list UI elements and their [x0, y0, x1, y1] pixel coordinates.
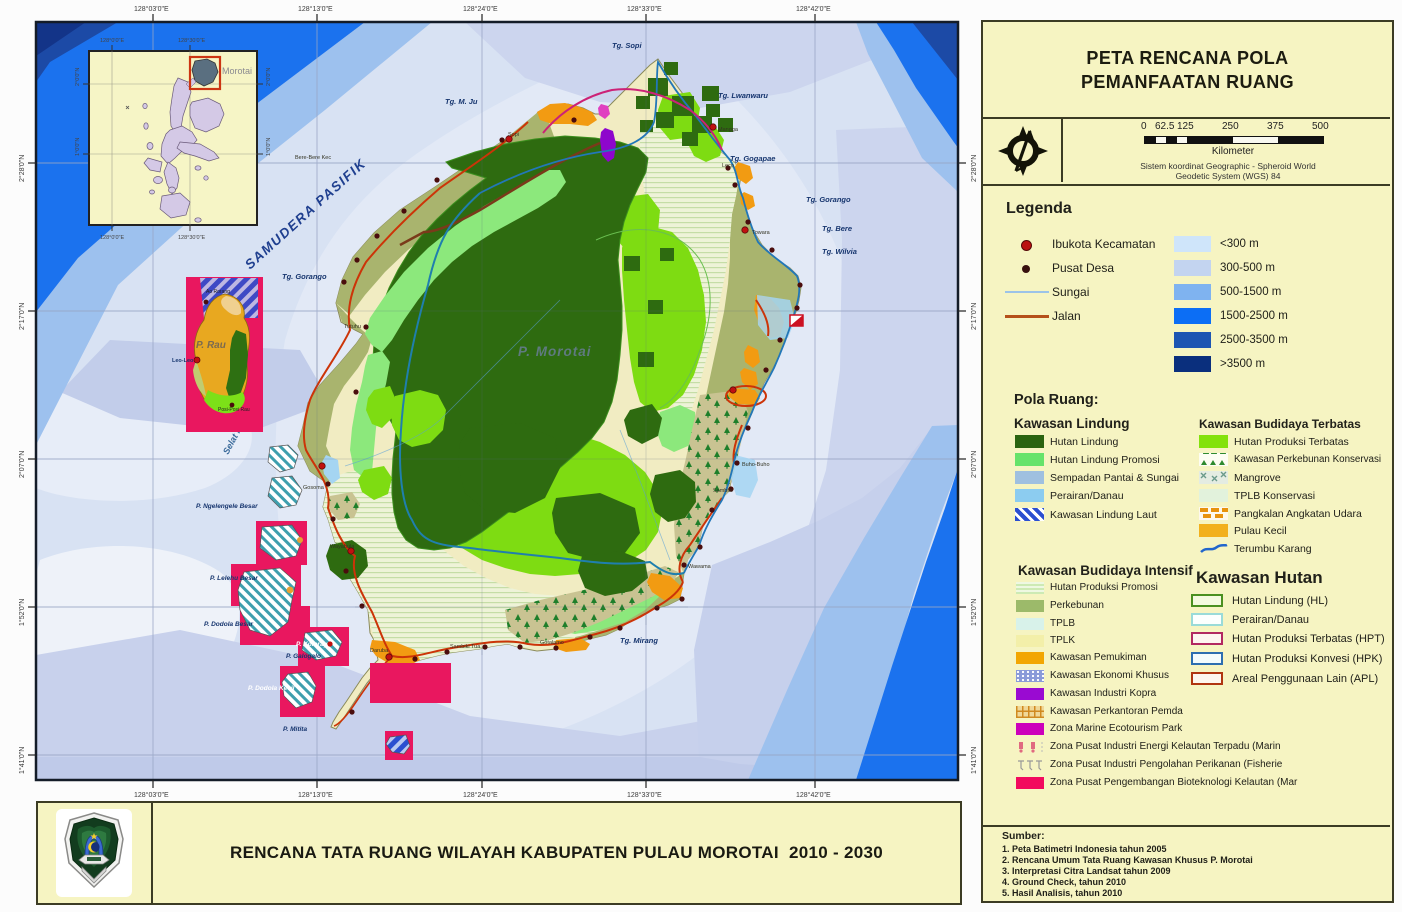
- svg-text:Towara: Towara: [752, 230, 771, 236]
- svg-text:2°17'0"N: 2°17'0"N: [970, 303, 978, 330]
- svg-text:Leco: Leco: [722, 163, 734, 169]
- svg-text:1°0'0"N: 1°0'0"N: [75, 138, 81, 156]
- svg-text:P. Koloray: P. Koloray: [296, 641, 328, 648]
- svg-text:2°28'0"N: 2°28'0"N: [18, 155, 26, 182]
- svg-text:Tg. M. Ju: Tg. M. Ju: [445, 97, 478, 106]
- svg-text:1°41'0"N: 1°41'0"N: [18, 747, 26, 774]
- svg-text:Ao Rorang: Ao Rorang: [206, 289, 230, 295]
- svg-text:128°0'0"E: 128°0'0"E: [100, 235, 124, 241]
- svg-text:Posi-Posi Rau: Posi-Posi Rau: [218, 407, 250, 413]
- svg-text:Tg. Gorango: Tg. Gorango: [282, 272, 327, 281]
- svg-text:Gosoma: Gosoma: [303, 485, 325, 491]
- svg-text:P. Dodola Besar: P. Dodola Besar: [204, 621, 253, 628]
- svg-text:128°33'0"E: 128°33'0"E: [627, 791, 662, 799]
- svg-text:128°42'0"E: 128°42'0"E: [796, 791, 831, 799]
- svg-text:P. Galogalo: P. Galogalo: [286, 653, 321, 660]
- svg-text:128°30'0"E: 128°30'0"E: [178, 235, 206, 241]
- svg-text:128°24'0"E: 128°24'0"E: [463, 791, 498, 799]
- svg-text:1°52'0"N: 1°52'0"N: [970, 599, 978, 626]
- svg-text:128°03'0"E: 128°03'0"E: [134, 5, 169, 13]
- svg-text:Mangga: Mangga: [718, 127, 739, 133]
- svg-text:128°0'0"E: 128°0'0"E: [100, 38, 124, 44]
- svg-text:P. Rau: P. Rau: [196, 340, 226, 351]
- svg-text:Tg. Lwanwaru: Tg. Lwanwaru: [718, 91, 768, 100]
- svg-text:2°17'0"N: 2°17'0"N: [18, 303, 26, 330]
- svg-text:128°24'0"E: 128°24'0"E: [463, 5, 498, 13]
- svg-text:Wawama: Wawama: [688, 564, 712, 570]
- svg-text:Wayabula: Wayabula: [330, 544, 355, 550]
- svg-text:128°42'0"E: 128°42'0"E: [796, 5, 831, 13]
- svg-text:Tutuhu: Tutuhu: [344, 324, 361, 330]
- svg-text:Tg. Wilvia: Tg. Wilvia: [822, 247, 857, 256]
- svg-text:P. Ngelengele Besar: P. Ngelengele Besar: [196, 503, 258, 510]
- svg-text:128°33'0"E: 128°33'0"E: [627, 5, 662, 13]
- svg-text:1°52'0"N: 1°52'0"N: [18, 599, 26, 626]
- svg-text:Buho-Buho: Buho-Buho: [742, 462, 770, 468]
- svg-text:P. Dodola Kecil: P. Dodola Kecil: [248, 685, 295, 692]
- svg-text:P. Morotai: P. Morotai: [518, 344, 592, 359]
- svg-text:2°0'0"N: 2°0'0"N: [266, 68, 272, 86]
- svg-text:Bere-Bere Kec: Bere-Bere Kec: [295, 155, 331, 161]
- svg-text:Sopi: Sopi: [508, 132, 519, 138]
- svg-text:Gotalamo: Gotalamo: [540, 640, 564, 646]
- svg-text:Tg. Gorango: Tg. Gorango: [806, 195, 851, 204]
- svg-text:Daruba: Daruba: [370, 648, 389, 654]
- svg-text:P. Lelehu Besar: P. Lelehu Besar: [210, 575, 258, 582]
- svg-text:2°07'0"N: 2°07'0"N: [970, 451, 978, 478]
- svg-text:Tg. Gogapae: Tg. Gogapae: [730, 154, 775, 163]
- svg-text:Tg. Sopi: Tg. Sopi: [612, 41, 642, 50]
- svg-text:2°28'0"N: 2°28'0"N: [970, 155, 978, 182]
- svg-text:128°30'0"E: 128°30'0"E: [178, 38, 206, 44]
- svg-text:1°0'0"N: 1°0'0"N: [266, 138, 272, 156]
- svg-text:128°13'0"E: 128°13'0"E: [298, 5, 333, 13]
- svg-text:1°41'0"N: 1°41'0"N: [970, 747, 978, 774]
- svg-text:Morotai: Morotai: [222, 66, 252, 76]
- svg-text:128°13'0"E: 128°13'0"E: [298, 791, 333, 799]
- svg-text:Tg. Mirang: Tg. Mirang: [620, 636, 658, 645]
- svg-text:2°07'0"N: 2°07'0"N: [18, 451, 26, 478]
- svg-text:Sambiki: Sambiki: [713, 488, 733, 494]
- svg-text:Leo-Leo: Leo-Leo: [172, 358, 194, 364]
- svg-text:128°03'0"E: 128°03'0"E: [134, 791, 169, 799]
- svg-text:Sambiki Tua: Sambiki Tua: [450, 644, 481, 650]
- svg-text:P. Mitita: P. Mitita: [283, 726, 307, 733]
- svg-text:Tg. Bere: Tg. Bere: [822, 224, 852, 233]
- svg-text:2°0'0"N: 2°0'0"N: [75, 68, 81, 86]
